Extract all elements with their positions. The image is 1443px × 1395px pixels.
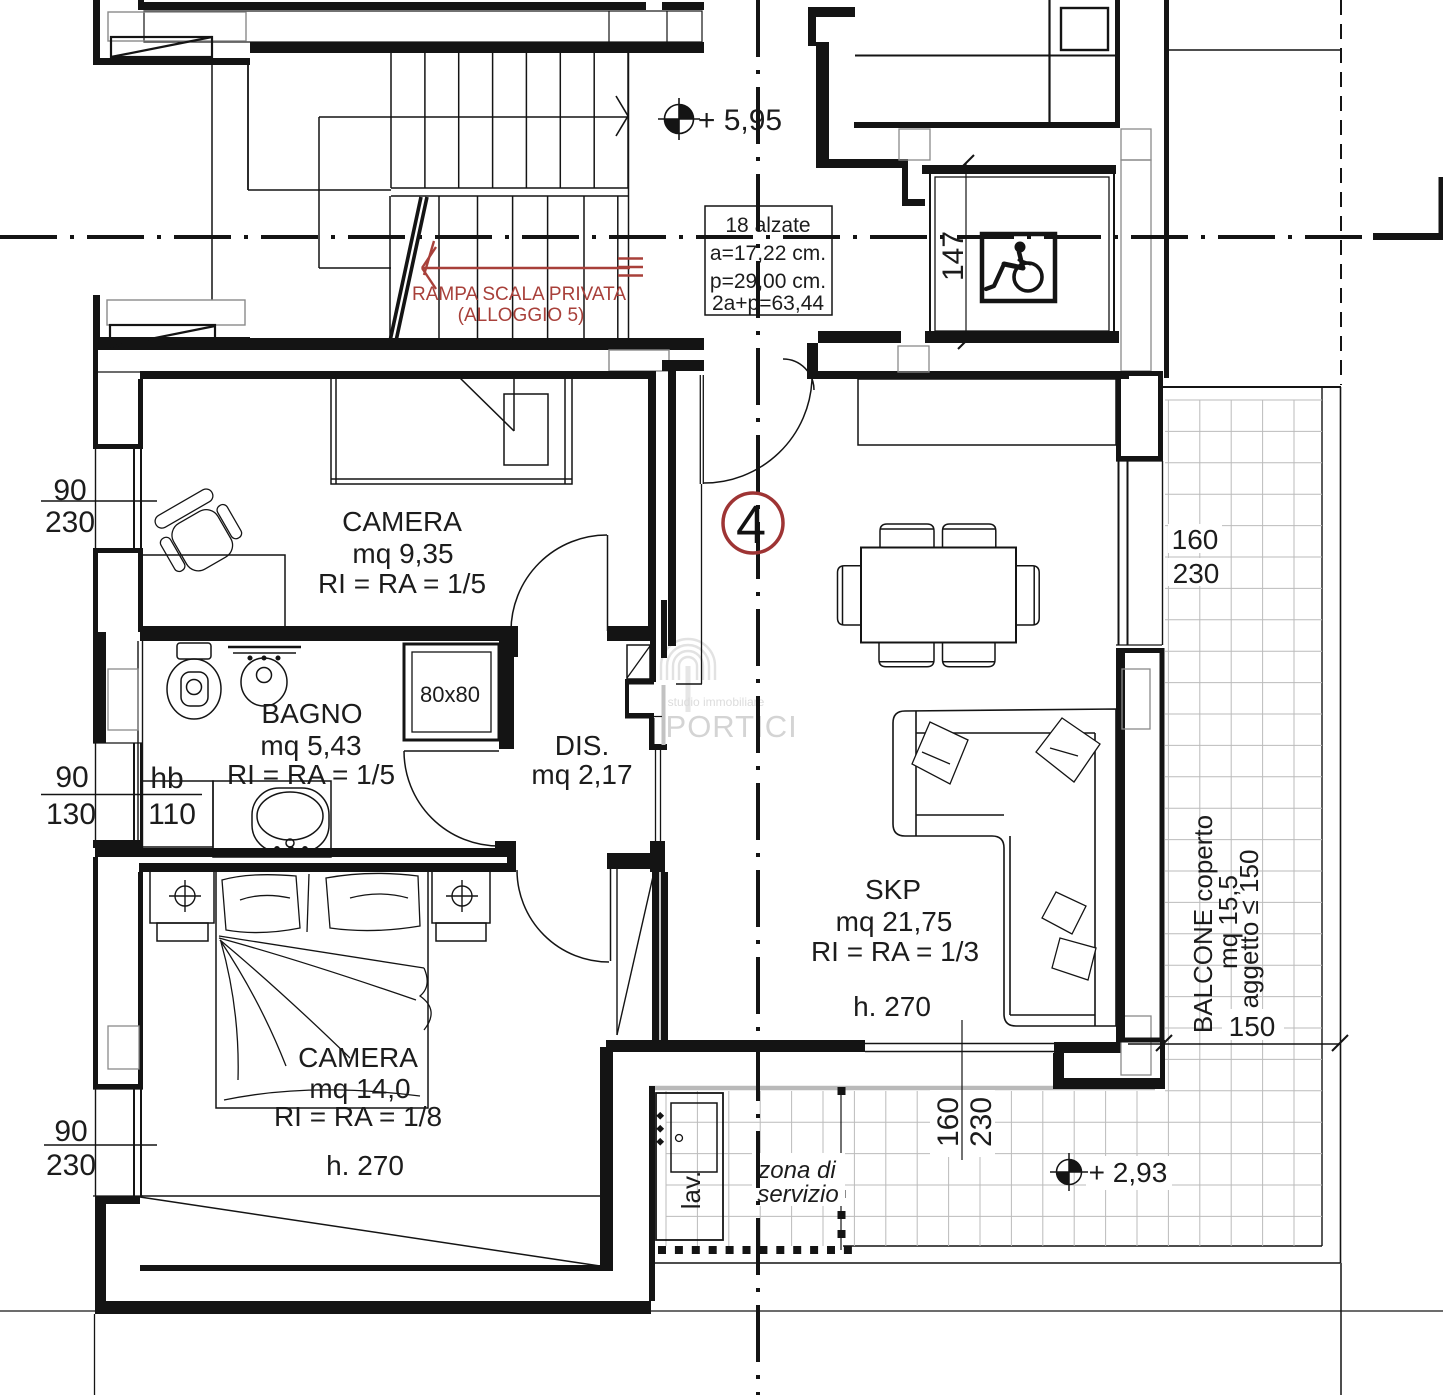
svg-text:RAMPA SCALA PRIVATA: RAMPA SCALA PRIVATA xyxy=(412,284,626,305)
svg-text:(ALLOGGIO 5): (ALLOGGIO 5) xyxy=(458,305,585,326)
svg-text:zona di: zona di xyxy=(757,1157,836,1184)
svg-text:90: 90 xyxy=(53,474,86,507)
svg-text:aggetto ≤ 150: aggetto ≤ 150 xyxy=(1234,850,1264,1009)
svg-text:160: 160 xyxy=(1172,524,1219,555)
svg-text:2a+p=63,44: 2a+p=63,44 xyxy=(712,292,824,315)
svg-text:hb: hb xyxy=(150,762,183,795)
svg-text:h. 270: h. 270 xyxy=(853,991,931,1022)
svg-text:BAGNO: BAGNO xyxy=(261,698,362,729)
svg-text:mq 2,17: mq 2,17 xyxy=(531,759,632,790)
svg-text:lav.: lav. xyxy=(676,1171,706,1210)
svg-text:CAMERA: CAMERA xyxy=(342,506,462,537)
svg-text:4: 4 xyxy=(736,495,766,555)
svg-text:230: 230 xyxy=(1173,558,1220,589)
svg-text:90: 90 xyxy=(54,1115,87,1148)
svg-text:RI = RA = 1/5: RI = RA = 1/5 xyxy=(318,568,486,599)
svg-text:230: 230 xyxy=(965,1097,998,1147)
svg-text:90: 90 xyxy=(55,761,88,794)
svg-text:+ 2,93: + 2,93 xyxy=(1089,1157,1168,1188)
svg-text:mq 21,75: mq 21,75 xyxy=(836,906,953,937)
svg-text:DIS.: DIS. xyxy=(555,730,609,761)
svg-text:h. 270: h. 270 xyxy=(326,1150,404,1181)
svg-text:150: 150 xyxy=(1229,1011,1276,1042)
svg-text:+ 5,95: + 5,95 xyxy=(698,104,782,137)
svg-text:110: 110 xyxy=(148,798,196,831)
svg-text:mq 14,0: mq 14,0 xyxy=(309,1073,410,1104)
svg-text:160: 160 xyxy=(932,1097,965,1147)
svg-text:servizio: servizio xyxy=(757,1181,838,1208)
svg-text:80x80: 80x80 xyxy=(420,682,480,707)
svg-text:18 alzate: 18 alzate xyxy=(725,214,810,237)
svg-text:mq 9,35: mq 9,35 xyxy=(352,538,453,569)
svg-text:studio immobiliare: studio immobiliare xyxy=(668,695,765,709)
svg-text:p=29,00 cm.: p=29,00 cm. xyxy=(710,270,826,293)
svg-text:mq 5,43: mq 5,43 xyxy=(260,730,361,761)
svg-text:230: 230 xyxy=(46,1149,96,1182)
svg-text:130: 130 xyxy=(46,798,96,831)
svg-text:RI = RA = 1/3: RI = RA = 1/3 xyxy=(811,936,979,967)
svg-text:SKP: SKP xyxy=(865,874,921,905)
svg-text:230: 230 xyxy=(45,506,95,539)
svg-text:CAMERA: CAMERA xyxy=(298,1042,418,1073)
svg-text:RI = RA = 1/8: RI = RA = 1/8 xyxy=(274,1101,442,1132)
svg-text:RI = RA = 1/5: RI = RA = 1/5 xyxy=(227,759,395,790)
svg-text:I PORTICI: I PORTICI xyxy=(646,709,797,744)
svg-text:a=17,22 cm.: a=17,22 cm. xyxy=(710,242,826,265)
